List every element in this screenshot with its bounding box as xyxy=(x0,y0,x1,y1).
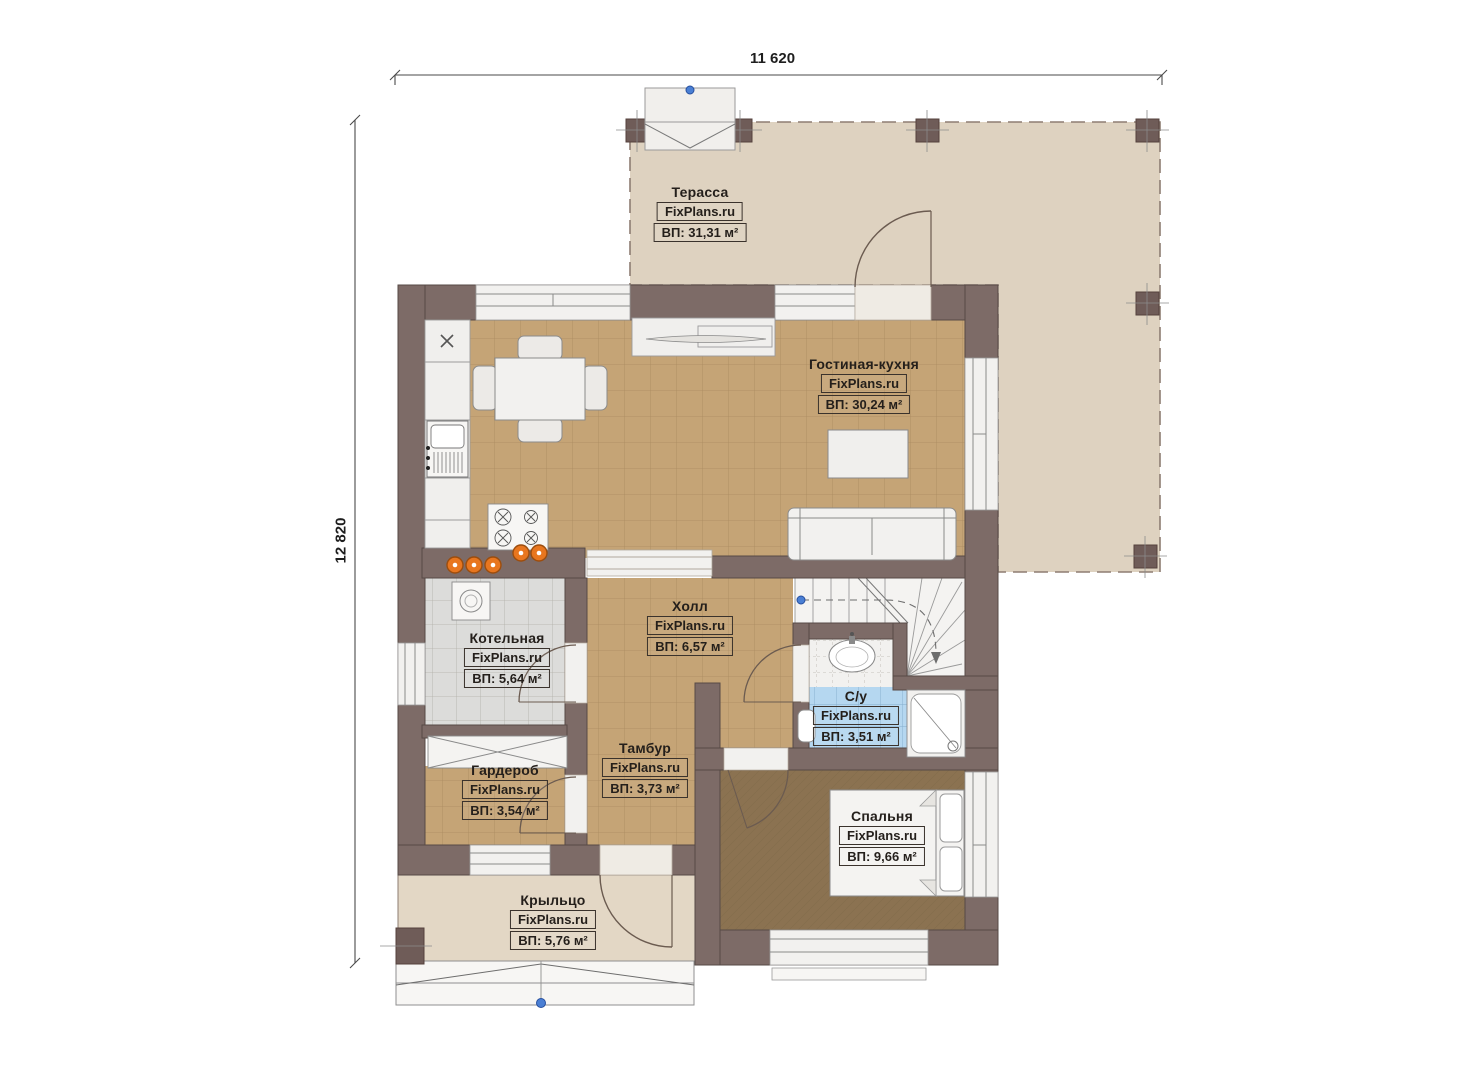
axis-marker-icon xyxy=(686,86,694,94)
opening-kitchen-hall xyxy=(587,550,712,576)
window-living-north xyxy=(775,285,855,320)
room-label-hall: Холл FixPlans.ru ВП: 6,57 м² xyxy=(647,598,733,656)
floor-plan-drawing xyxy=(0,0,1474,1080)
room-area: ВП: 3,51 м² xyxy=(813,727,899,746)
room-label-terrace: Терасса FixPlans.ru ВП: 31,31 м² xyxy=(654,184,747,242)
pillow-icon xyxy=(940,794,962,842)
brand-badge: FixPlans.ru xyxy=(657,202,743,221)
brand-badge: FixPlans.ru xyxy=(510,910,596,929)
window-wardrobe xyxy=(470,845,550,875)
shower-icon xyxy=(907,690,965,757)
room-name: Холл xyxy=(647,598,733,614)
room-label-boiler: Котельная FixPlans.ru ВП: 5,64 м² xyxy=(464,630,550,688)
window-living-east xyxy=(965,358,998,510)
room-label-porch: Крыльцо FixPlans.ru ВП: 5,76 м² xyxy=(510,892,596,950)
brand-badge: FixPlans.ru xyxy=(464,648,550,667)
room-name: С/у xyxy=(813,688,899,704)
room-label-wardrobe: Гардероб FixPlans.ru ВП: 3,54 м² xyxy=(462,762,548,820)
stove-icon xyxy=(488,504,548,550)
window-kitchen xyxy=(476,285,630,320)
window-boiler xyxy=(398,643,425,705)
wall-tambour-east xyxy=(695,683,720,965)
room-area: ВП: 6,57 м² xyxy=(647,637,733,656)
dimension-height: 12 820 xyxy=(332,518,349,564)
floor-plan-canvas: 11 620 12 820 Терасса FixPlans.ru ВП: 31… xyxy=(0,0,1474,1080)
brand-badge: FixPlans.ru xyxy=(813,706,899,725)
room-label-tambour: Тамбур FixPlans.ru ВП: 3,73 м² xyxy=(602,740,688,798)
window-bedroom-south xyxy=(770,930,928,980)
room-name: Тамбур xyxy=(602,740,688,756)
axis-marker-icon xyxy=(537,999,546,1008)
brand-badge: FixPlans.ru xyxy=(647,616,733,635)
room-name: Гардероб xyxy=(462,762,548,778)
room-area: ВП: 3,73 м² xyxy=(602,779,688,798)
room-area: ВП: 30,24 м² xyxy=(818,395,911,414)
room-area: ВП: 5,64 м² xyxy=(464,669,550,688)
washing-machine-icon xyxy=(452,582,490,620)
room-label-living-kitchen: Гостиная-кухня FixPlans.ru ВП: 30,24 м² xyxy=(809,356,919,414)
window-bedroom-east xyxy=(965,772,998,897)
brand-badge: FixPlans.ru xyxy=(821,374,907,393)
room-name: Гостиная-кухня xyxy=(809,356,919,372)
room-name: Котельная xyxy=(464,630,550,646)
skylight-icon xyxy=(645,86,735,150)
room-area: ВП: 3,54 м² xyxy=(462,801,548,820)
room-area: ВП: 9,66 м² xyxy=(839,847,925,866)
wall-winder-south xyxy=(893,676,998,690)
brand-badge: FixPlans.ru xyxy=(602,758,688,777)
room-label-bathroom: С/у FixPlans.ru ВП: 3,51 м² xyxy=(813,688,899,746)
pillow-icon xyxy=(940,847,962,891)
room-name: Крыльцо xyxy=(510,892,596,908)
brand-badge: FixPlans.ru xyxy=(839,826,925,845)
brand-badge: FixPlans.ru xyxy=(462,780,548,799)
sofa-icon xyxy=(788,508,956,560)
room-label-bedroom: Спальня FixPlans.ru ВП: 9,66 м² xyxy=(839,808,925,866)
room-area: ВП: 5,76 м² xyxy=(510,931,596,950)
wall-west xyxy=(398,285,425,847)
room-area: ВП: 31,31 м² xyxy=(654,223,747,242)
room-name: Терасса xyxy=(654,184,747,200)
coffee-table-icon xyxy=(828,430,908,478)
wall-kitchen-boiler xyxy=(422,548,585,578)
porch-steps-icon xyxy=(396,961,694,1008)
dimension-width: 11 620 xyxy=(750,50,795,67)
fireplace-icon xyxy=(632,318,775,356)
kitchen-sink-icon xyxy=(426,421,468,477)
room-name: Спальня xyxy=(839,808,925,824)
stairs-start-marker xyxy=(797,596,805,604)
